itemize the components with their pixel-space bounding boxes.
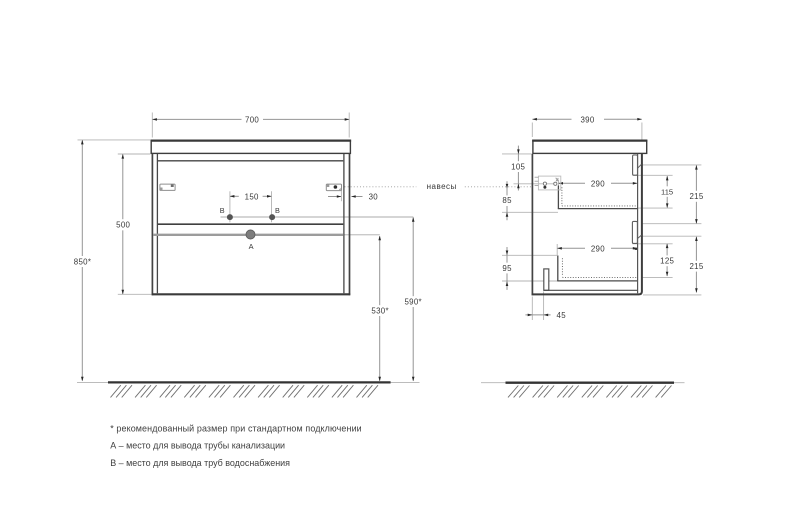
svg-text:390: 390	[580, 116, 594, 125]
svg-text:700: 700	[245, 116, 259, 125]
svg-text:500: 500	[116, 221, 130, 230]
svg-text:115: 115	[661, 187, 673, 196]
svg-text:530*: 530*	[371, 306, 388, 315]
svg-text:В: В	[220, 206, 225, 215]
svg-text:А: А	[249, 242, 254, 251]
svg-text:45: 45	[557, 311, 567, 320]
svg-text:590*: 590*	[404, 297, 421, 306]
svg-text:А – место для вывода трубы кан: А – место для вывода трубы канализации	[110, 441, 285, 451]
svg-text:В – место для вывода труб водо: В – место для вывода труб водоснабжения	[110, 458, 290, 468]
svg-text:85: 85	[502, 196, 512, 205]
svg-text:150: 150	[245, 192, 259, 201]
svg-text:850*: 850*	[74, 257, 91, 266]
svg-text:В: В	[275, 206, 280, 215]
svg-text:* рекомендованный размер при с: * рекомендованный размер при стандартном…	[110, 423, 362, 433]
svg-text:95: 95	[502, 264, 512, 273]
svg-text:215: 215	[689, 262, 703, 271]
svg-text:навесы: навесы	[427, 182, 457, 191]
svg-text:125: 125	[660, 257, 674, 266]
svg-text:290: 290	[591, 244, 605, 253]
svg-text:290: 290	[591, 179, 605, 188]
svg-text:105: 105	[511, 162, 525, 171]
svg-text:30: 30	[369, 193, 379, 202]
svg-text:215: 215	[689, 192, 703, 201]
